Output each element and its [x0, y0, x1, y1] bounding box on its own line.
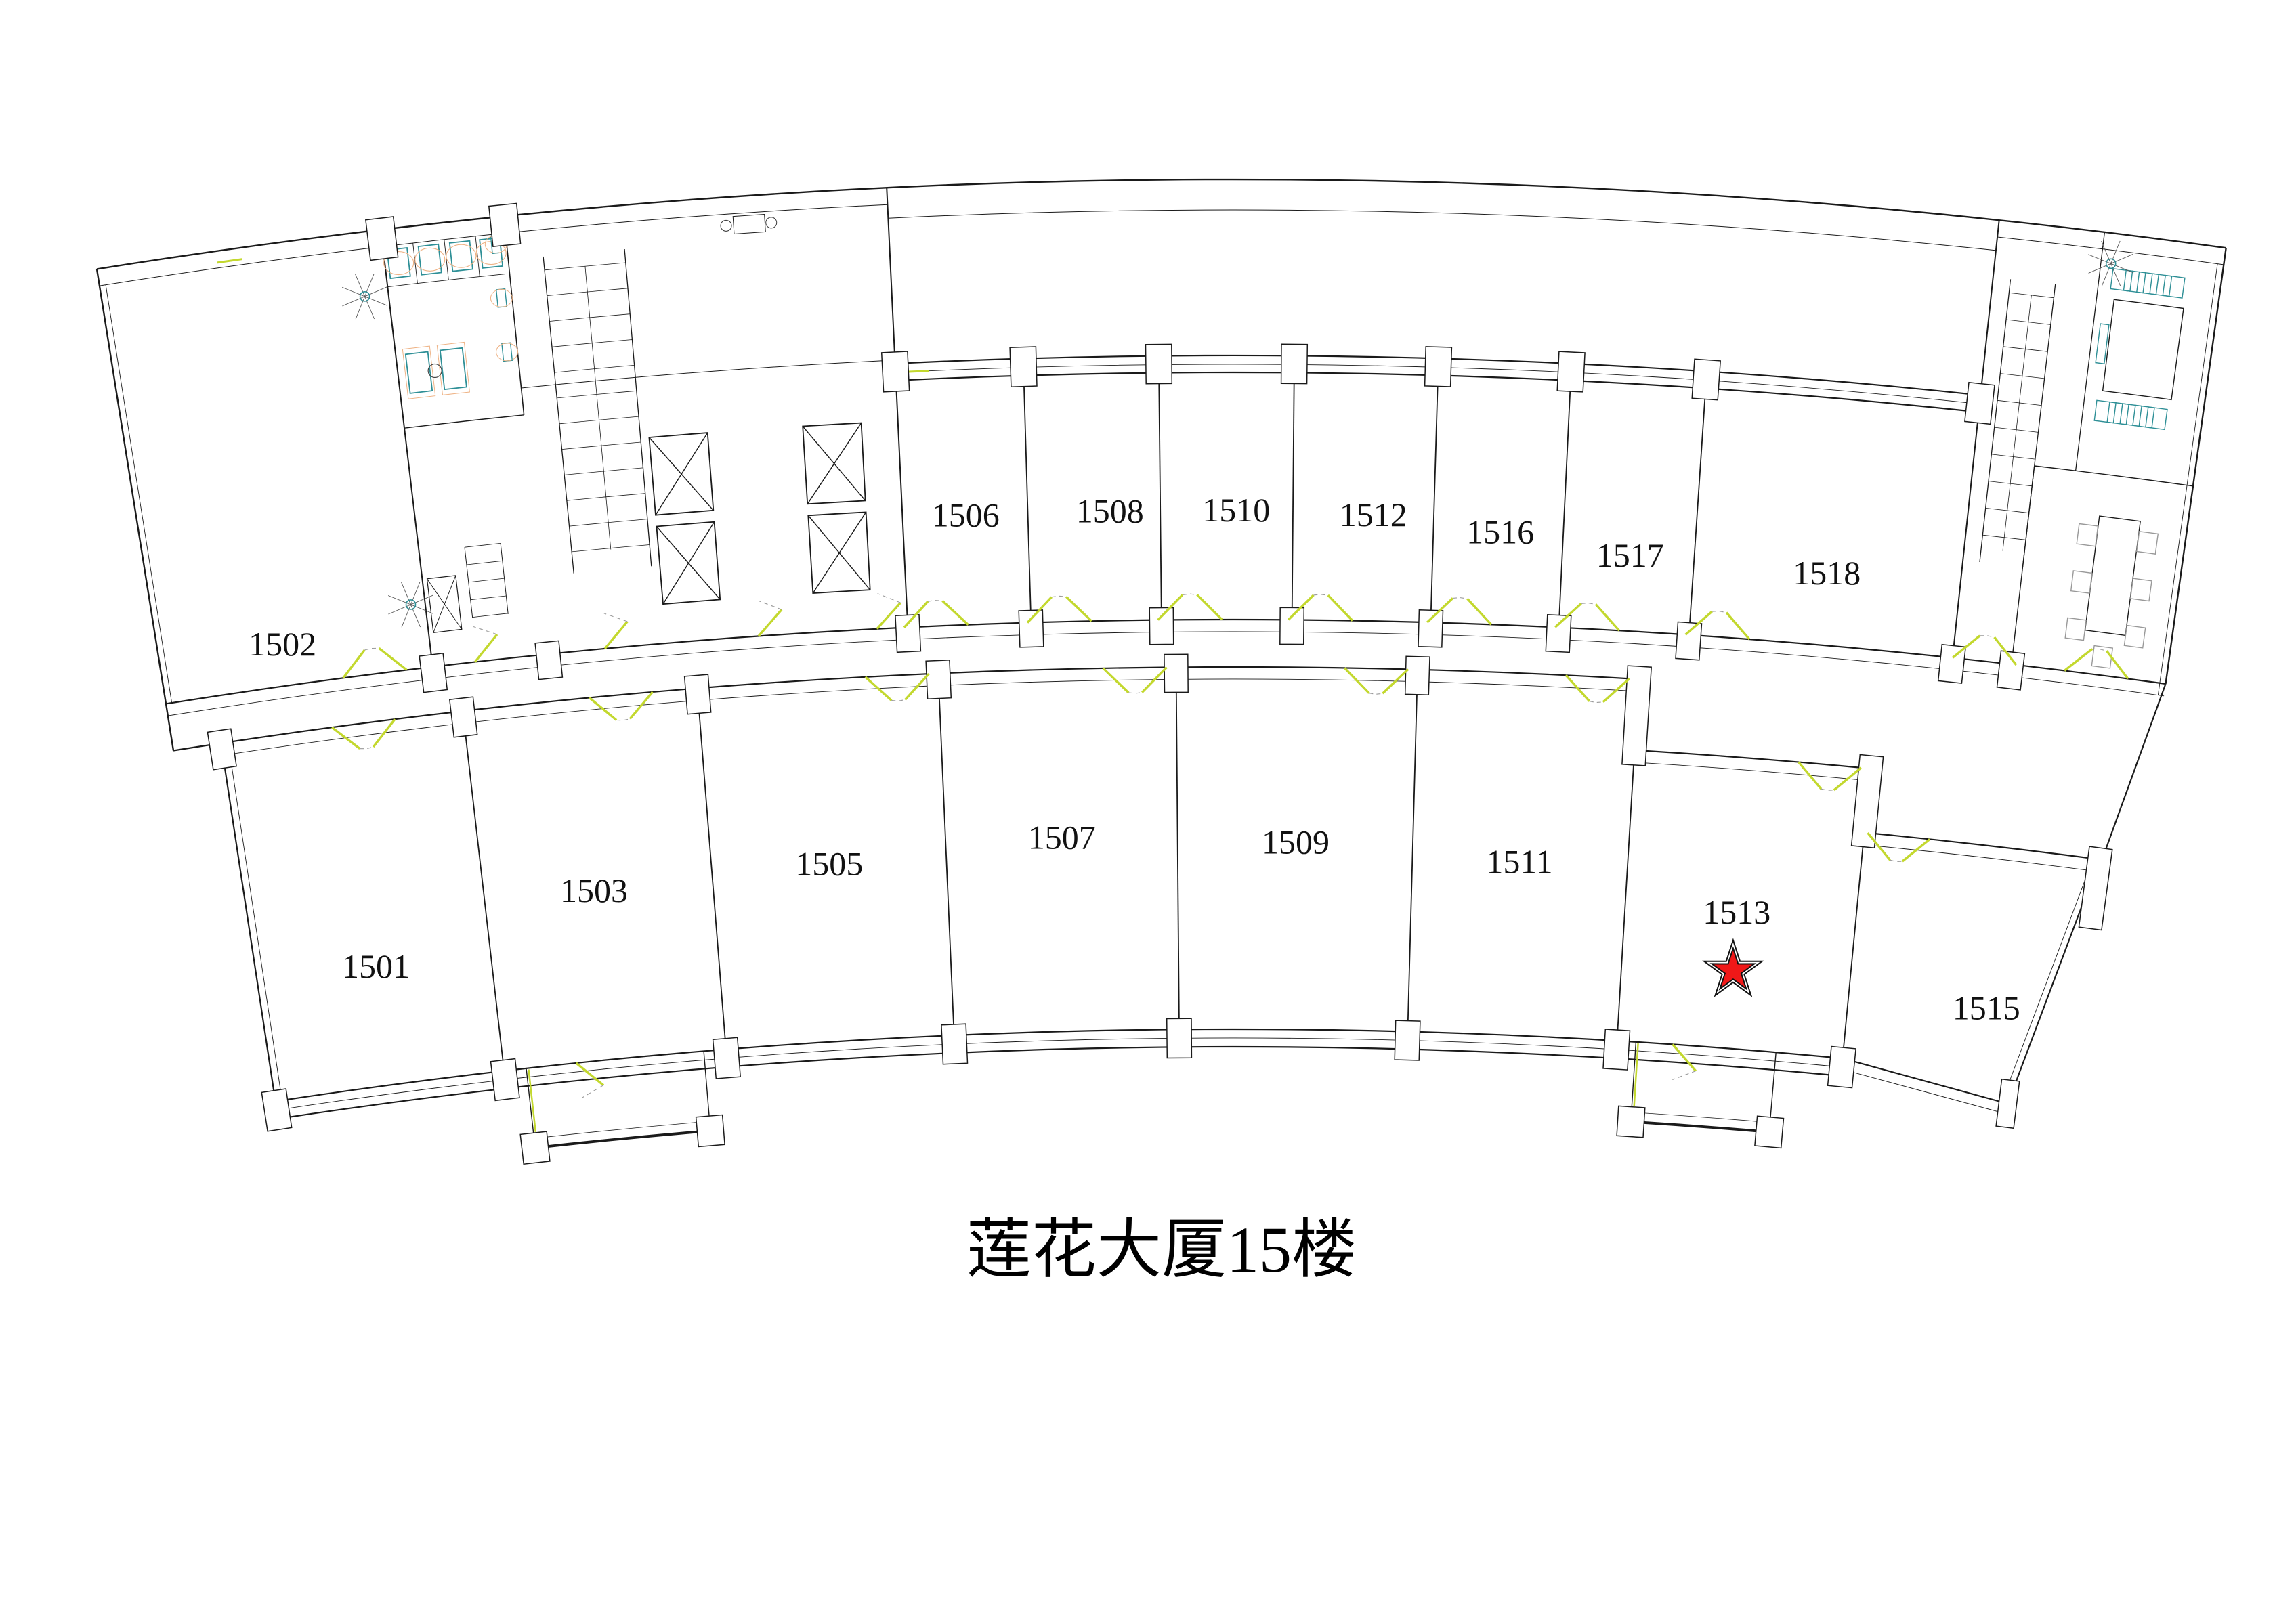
room-label-1516: 1516 [1466, 513, 1534, 551]
floor-plan-svg: 1502150615081510151215161517151815011503… [0, 0, 2296, 1600]
room-label-1505: 1505 [795, 844, 863, 882]
room-label-1501: 1501 [342, 947, 410, 985]
room-label-1507: 1507 [1028, 818, 1096, 856]
room-label-1511: 1511 [1486, 842, 1552, 880]
room-label-1517: 1517 [1596, 536, 1664, 574]
room-label-1508: 1508 [1076, 492, 1144, 530]
room-label-1510: 1510 [1202, 491, 1270, 529]
room-label-1512: 1512 [1340, 496, 1407, 534]
room-label-1515: 1515 [1953, 989, 2020, 1026]
room-label-1513: 1513 [1703, 893, 1770, 931]
room-label-1502: 1502 [249, 625, 316, 663]
floor-plan-title: 莲花大厦15楼 [966, 1213, 1357, 1286]
room-label-1509: 1509 [1262, 823, 1330, 861]
floor-plan-drawing: 1502150615081510151215161517151815011503… [97, 179, 2226, 1164]
room-label-1503: 1503 [560, 871, 628, 909]
room-label-1518: 1518 [1793, 554, 1861, 592]
room-label-1506: 1506 [932, 496, 1000, 534]
floor-plan-page: 1502150615081510151215161517151815011503… [0, 0, 2296, 1600]
